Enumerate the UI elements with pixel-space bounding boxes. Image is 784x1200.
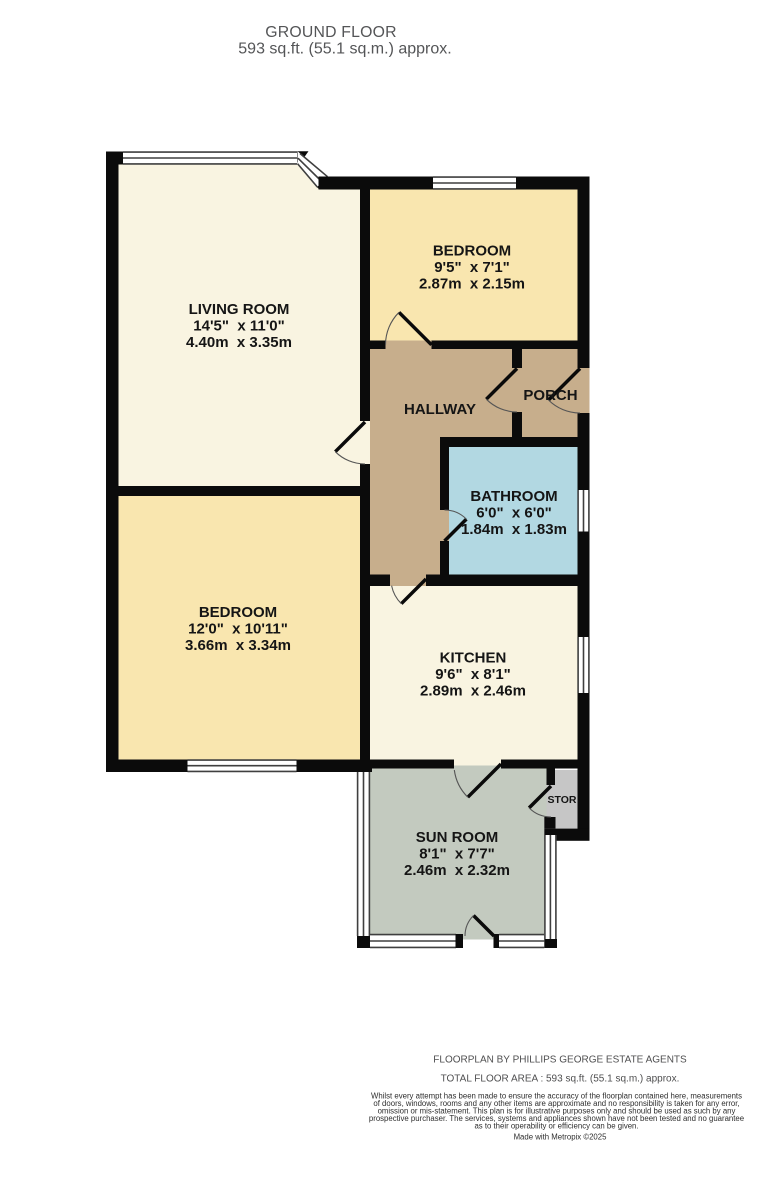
svg-text:PORCH: PORCH [523,387,577,404]
svg-text:FLOORPLAN BY PHILLIPS GEORGE E: FLOORPLAN BY PHILLIPS GEORGE ESTATE AGEN… [433,1055,687,1066]
svg-text:SUN ROOM: SUN ROOM [416,829,499,846]
svg-text:BEDROOM: BEDROOM [199,604,277,621]
svg-text:LIVING ROOM: LIVING ROOM [189,301,290,318]
svg-text:9'5" x 7'1": 9'5" x 7'1" [434,259,510,276]
svg-text:2.46m x 2.32m: 2.46m x 2.32m [404,862,510,879]
svg-text:6'0" x 6'0": 6'0" x 6'0" [476,505,552,522]
svg-text:GROUND FLOOR: GROUND FLOOR [265,24,396,41]
svg-text:4.40m x 3.35m: 4.40m x 3.35m [186,334,292,351]
svg-text:STOR: STOR [548,794,577,806]
svg-text:593 sq.ft. (55.1 sq.m.) approx: 593 sq.ft. (55.1 sq.m.) approx. [238,41,451,58]
svg-text:as to their operability or eff: as to their operability or efficiency ca… [474,1122,638,1131]
svg-text:12'0" x 10'11": 12'0" x 10'11" [188,621,288,638]
svg-text:Made with Metropix ©2025: Made with Metropix ©2025 [514,1133,608,1142]
svg-text:9'6" x 8'1": 9'6" x 8'1" [435,666,511,683]
svg-text:2.87m x 2.15m: 2.87m x 2.15m [419,276,525,293]
svg-text:2.89m x 2.46m: 2.89m x 2.46m [420,683,526,700]
svg-text:HALLWAY: HALLWAY [404,401,476,418]
svg-text:BATHROOM: BATHROOM [470,488,557,505]
svg-text:TOTAL FLOOR AREA : 593 sq.ft.: TOTAL FLOOR AREA : 593 sq.ft. (55.1 sq.m… [441,1074,680,1085]
svg-text:14'5" x 11'0": 14'5" x 11'0" [193,318,284,335]
svg-text:3.66m x 3.34m: 3.66m x 3.34m [185,637,291,654]
svg-text:8'1" x 7'7": 8'1" x 7'7" [419,846,495,863]
svg-text:BEDROOM: BEDROOM [433,243,511,260]
svg-text:1.84m x 1.83m: 1.84m x 1.83m [461,521,567,538]
svg-text:KITCHEN: KITCHEN [440,650,507,667]
